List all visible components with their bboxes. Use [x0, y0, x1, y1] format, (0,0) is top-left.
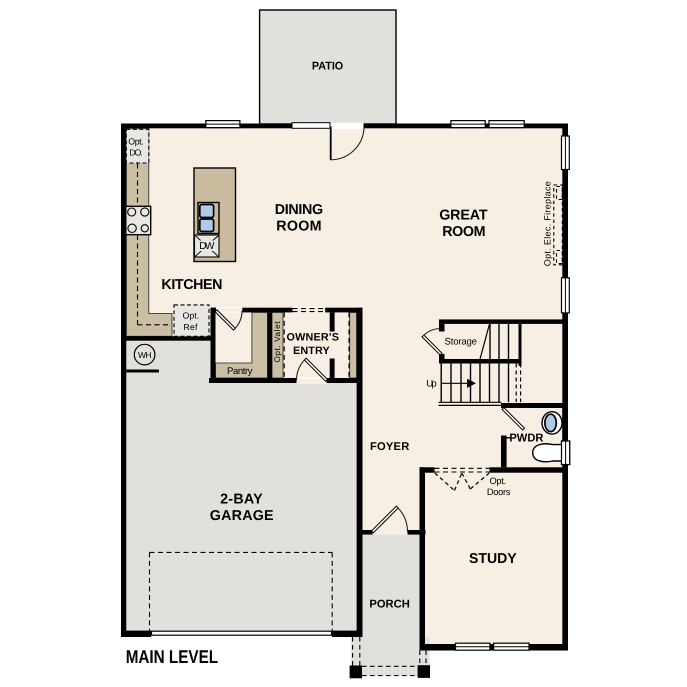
svg-text:ROOM: ROOM: [276, 219, 321, 235]
svg-text:Ref: Ref: [183, 322, 198, 332]
svg-text:ENTRY: ENTRY: [293, 345, 330, 357]
svg-text:Opt. Valet: Opt. Valet: [273, 321, 282, 363]
svg-text:Storage: Storage: [445, 337, 478, 348]
svg-text:PORCH: PORCH: [369, 599, 409, 611]
svg-text:DINING: DINING: [275, 202, 323, 218]
svg-text:ROOM: ROOM: [442, 224, 485, 240]
svg-text:WH: WH: [138, 350, 152, 360]
svg-text:Opt.: Opt.: [128, 137, 143, 147]
svg-text:KITCHEN: KITCHEN: [161, 277, 222, 293]
svg-text:Up: Up: [426, 379, 437, 390]
svg-text:DO.: DO.: [129, 148, 142, 158]
svg-text:FOYER: FOYER: [370, 441, 409, 453]
svg-text:STUDY: STUDY: [469, 551, 517, 567]
svg-text:Opt. Elec. Fireplace: Opt. Elec. Fireplace: [542, 181, 552, 266]
svg-text:OWNER'S: OWNER'S: [287, 331, 339, 343]
svg-text:GARAGE: GARAGE: [210, 508, 274, 524]
svg-text:Opt.: Opt.: [490, 476, 507, 486]
svg-text:MAIN LEVEL: MAIN LEVEL: [126, 646, 218, 667]
svg-text:GREAT: GREAT: [439, 207, 488, 223]
svg-text:PWDR: PWDR: [509, 433, 544, 445]
svg-text:PATIO: PATIO: [312, 60, 344, 72]
svg-text:DW: DW: [199, 241, 215, 252]
svg-text:Doors: Doors: [487, 487, 511, 497]
svg-text:Pantry: Pantry: [227, 366, 253, 377]
svg-text:2-BAY: 2-BAY: [220, 492, 263, 508]
svg-text:Opt.: Opt.: [183, 311, 200, 321]
